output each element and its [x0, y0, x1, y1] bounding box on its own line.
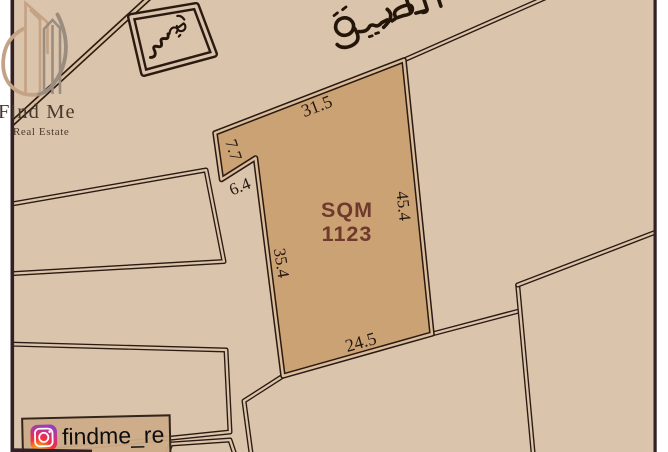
svg-text:Real Estate: Real Estate: [13, 126, 69, 138]
svg-text:Find Me: Find Me: [0, 101, 76, 123]
svg-text:45.4: 45.4: [392, 190, 414, 222]
svg-text:1123: 1123: [322, 222, 373, 246]
svg-text:findme_re: findme_re: [62, 421, 165, 449]
svg-text:SQM: SQM: [321, 198, 373, 222]
